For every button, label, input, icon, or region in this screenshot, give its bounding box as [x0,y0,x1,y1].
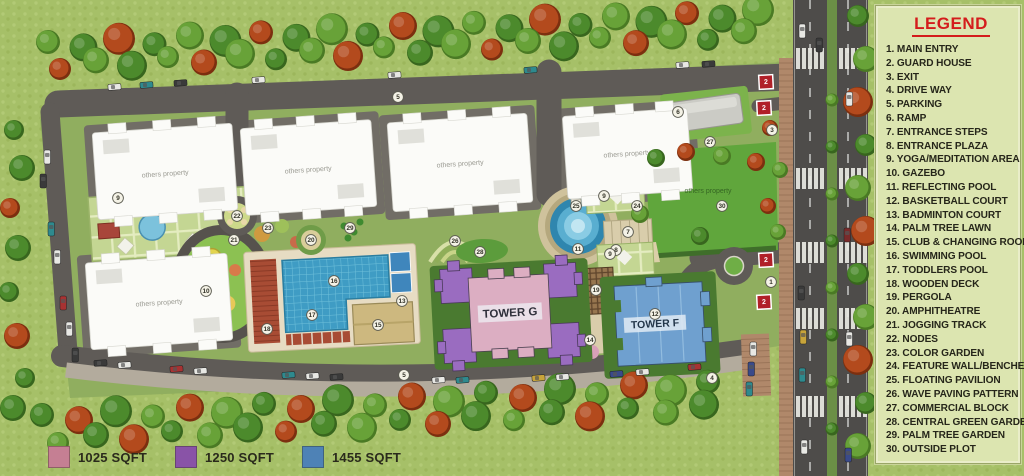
svg-text:4: 4 [710,375,714,382]
map-marker: 19 [591,285,602,296]
map-marker: 9 [113,193,124,204]
tower-g: TOWER G [429,254,593,372]
sqft-label: 1455 SQFT [332,450,401,465]
svg-text:15: 15 [374,322,382,329]
svg-text:29: 29 [346,225,354,232]
legend-item: 14. PALM TREE LAWN [886,222,1016,236]
master-plan-map: others propertyothers propertyothers pro… [0,0,1024,476]
svg-text:20: 20 [307,237,315,244]
svg-text:1: 1 [769,279,773,286]
svg-text:11: 11 [575,246,582,253]
legend-item: 10. GAZEBO [886,167,1016,181]
map-marker: 3 [767,125,778,136]
guard-house: 2 [757,101,772,116]
map-marker: 26 [450,236,461,247]
svg-text:21: 21 [230,237,238,244]
map-marker: 29 [345,223,356,234]
legend-item: 24. FEATURE WALL/BENCHES [886,360,1016,374]
legend-item: 22. NODES [886,333,1016,347]
svg-text:7: 7 [626,229,630,236]
svg-text:9: 9 [608,251,612,258]
map-marker: 15 [373,320,384,331]
map-marker: 1 [766,277,777,288]
map-marker: 28 [475,247,486,258]
others-property-building: others property [92,115,239,228]
legend-item: 23. COLOR GARDEN [886,347,1016,361]
guard-house: 2 [757,295,772,310]
svg-text:9: 9 [116,195,120,202]
svg-text:19: 19 [592,287,600,294]
svg-text:30: 30 [718,203,726,210]
legend-item: 5. PARKING [886,98,1016,112]
legend-item: 16. SWIMMING POOL [886,250,1016,264]
svg-text:25: 25 [572,203,580,210]
legend-title: LEGEND [912,14,990,37]
sqft-color-swatch [48,446,70,468]
legend-item: 19. PERGOLA [886,291,1016,305]
legend-item: 27. COMMERCIAL BLOCK [886,402,1016,416]
sqft-legend-item: 1250 SQFT [175,446,274,468]
legend-item: 2. GUARD HOUSE [886,57,1016,71]
svg-text:10: 10 [202,288,210,295]
legend-item: 3. EXIT [886,71,1016,85]
legend-items: 1. MAIN ENTRY2. GUARD HOUSE3. EXIT4. DRI… [886,43,1016,457]
others-property-building: others property [387,105,534,220]
svg-text:6: 6 [676,109,680,116]
sqft-label: 1025 SQFT [78,450,147,465]
svg-text:5: 5 [402,372,406,379]
map-marker: 30 [717,201,728,212]
svg-text:22: 22 [233,213,241,220]
map-marker: 6 [673,107,684,118]
sqft-color-swatch [175,446,197,468]
svg-text:13: 13 [398,298,406,305]
legend-item: 7. ENTRANCE STEPS [886,126,1016,140]
sqft-legend-item: 1025 SQFT [48,446,147,468]
badminton-court [390,252,411,272]
svg-text:12: 12 [651,311,659,318]
guard-house: 2 [759,253,774,268]
svg-text:16: 16 [330,278,338,285]
legend-item: 11. REFLECTING POOL [886,181,1016,195]
guard-house-label: 2 [762,299,766,306]
map-marker: 22 [232,211,243,222]
map-marker: 5 [399,370,410,381]
others-property-building: others property [85,245,234,358]
legend-item: 30. OUTSIDE PLOT [886,443,1016,457]
map-marker: 25 [571,201,582,212]
sqft-label: 1250 SQFT [205,450,274,465]
legend-item: 26. WAVE PAVING PATTERN [886,388,1016,402]
map-marker: 12 [650,309,661,320]
legend-item: 20. AMPHITHEATRE [886,305,1016,319]
legend-item: 1. MAIN ENTRY [886,43,1016,57]
legend-item: 8. ENTRANCE PLAZA [886,140,1016,154]
map-marker: 27 [705,137,716,148]
svg-text:18: 18 [263,326,271,333]
map-marker: 21 [229,235,240,246]
guard-house-label: 2 [764,257,768,264]
legend-item: 29. PALM TREE GARDEN [886,429,1016,443]
legend-item: 13. BADMINTON COURT [886,209,1016,223]
outside-plot-label: others property [684,188,732,195]
sqft-color-swatch [302,446,324,468]
svg-text:23: 23 [264,225,272,232]
legend-panel: LEGEND 1. MAIN ENTRY2. GUARD HOUSE3. EXI… [875,5,1021,464]
svg-text:17: 17 [308,312,316,319]
svg-text:26: 26 [451,238,459,245]
badminton-court [391,273,412,293]
svg-text:3: 3 [770,127,774,134]
map-marker: 10 [201,286,212,297]
legend-item: 28. CENTRAL GREEN GARDEN [886,416,1016,430]
map-marker: 24 [632,201,643,212]
entry-roundabout [715,247,753,285]
svg-text:24: 24 [633,203,641,210]
legend-item: 18. WOODEN DECK [886,278,1016,292]
others-property-building: others property [240,112,378,224]
guard-house: 2 [759,75,774,90]
map-marker: 11 [573,244,584,255]
legend-item: 15. CLUB & CHANGING ROOM [886,236,1016,250]
tower-f: TOWER F [599,271,720,379]
guard-house-label: 2 [762,105,766,112]
legend-item: 17. TODDLERS POOL [886,264,1016,278]
legend-item: 25. FLOATING PAVILION [886,374,1016,388]
others-property-building: others property [562,100,694,207]
svg-text:27: 27 [706,139,714,146]
svg-text:14: 14 [586,337,594,344]
map-marker: 7 [623,227,634,238]
map-marker: 14 [585,335,596,346]
map-marker: 20 [306,235,317,246]
map-marker: 13 [397,296,408,307]
legend-item: 9. YOGA/MEDITATION AREA [886,153,1016,167]
site-plan-screenshot: others propertyothers propertyothers pro… [0,0,1024,476]
svg-text:5: 5 [396,94,400,101]
map-marker: 9 [605,249,616,260]
legend-item: 12. BASKETBALL COURT [886,195,1016,209]
map-marker: 18 [262,324,273,335]
map-marker: 9 [599,191,610,202]
map-marker: 5 [393,92,404,103]
legend-item: 6. RAMP [886,112,1016,126]
pool-complex [243,243,420,352]
legend-item: 21. JOGGING TRACK [886,319,1016,333]
sqft-legend: 1025 SQFT1250 SQFT1455 SQFT [48,443,429,471]
map-marker: 4 [707,373,718,384]
guard-house-label: 2 [764,79,768,86]
map-marker: 23 [263,223,274,234]
legend-item: 4. DRIVE WAY [886,84,1016,98]
sqft-legend-item: 1455 SQFT [302,446,401,468]
map-marker: 16 [329,276,340,287]
map-marker: 17 [307,310,318,321]
svg-text:9: 9 [602,193,606,200]
svg-text:28: 28 [476,249,484,256]
